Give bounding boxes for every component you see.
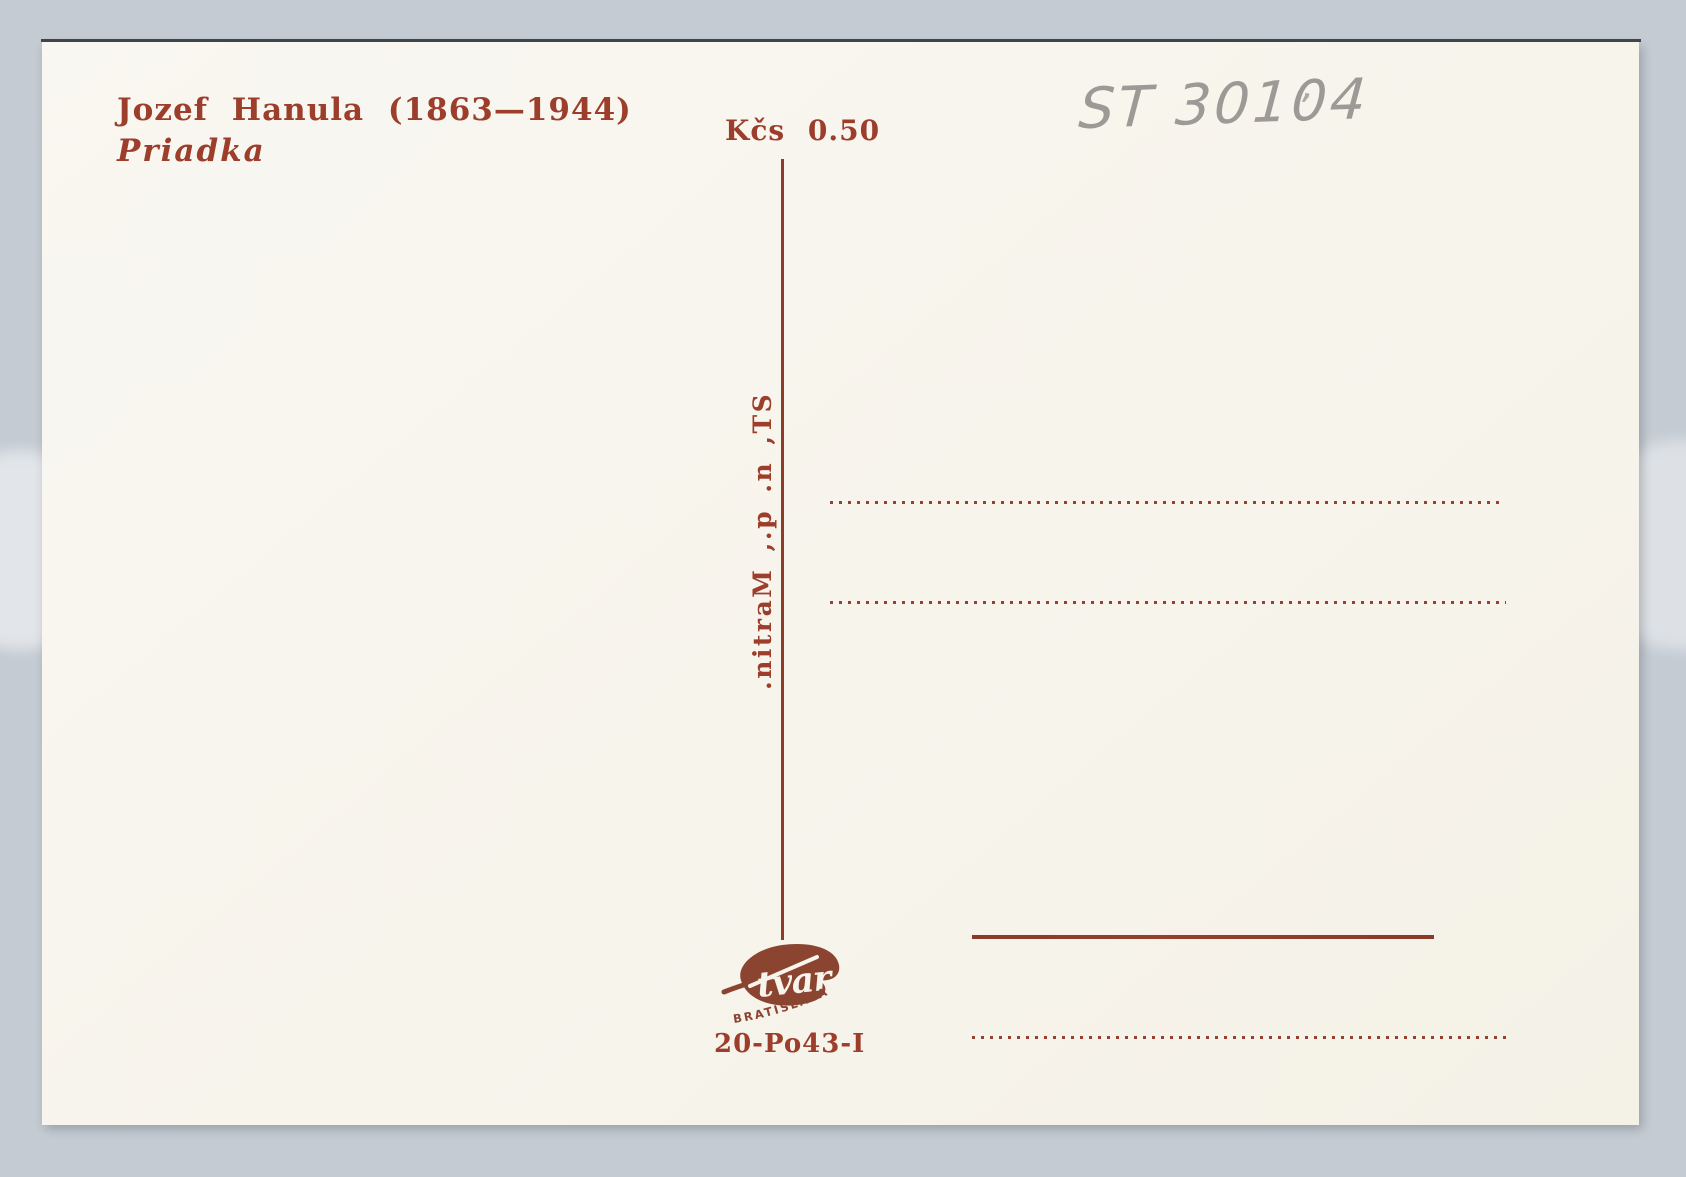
tvar-logo-graphic: tvar BRATISLAVA (720, 939, 852, 1027)
address-dotted-line-3 (972, 1036, 1508, 1039)
artist-name-and-dates: Jozef Hanula (1863—1944) (117, 92, 632, 128)
center-divider-line (781, 159, 784, 940)
publisher-imprint-vertical: .nitraM ,.p .n ,TS (748, 392, 777, 690)
handwritten-inventory-number: ST 30104 (1077, 67, 1371, 142)
address-dotted-line-2 (830, 601, 1506, 604)
postcard-back: Jozef Hanula (1863—1944) Priadka Kčs 0.5… (42, 42, 1639, 1125)
address-dotted-line-1 (830, 501, 1504, 504)
tvar-logo: tvar BRATISLAVA (720, 939, 852, 1027)
address-solid-line (972, 935, 1434, 939)
price-label: Kčs 0.50 (725, 114, 880, 147)
print-code: 20-Po43-I (714, 1029, 858, 1059)
artwork-title: Priadka (117, 133, 266, 169)
